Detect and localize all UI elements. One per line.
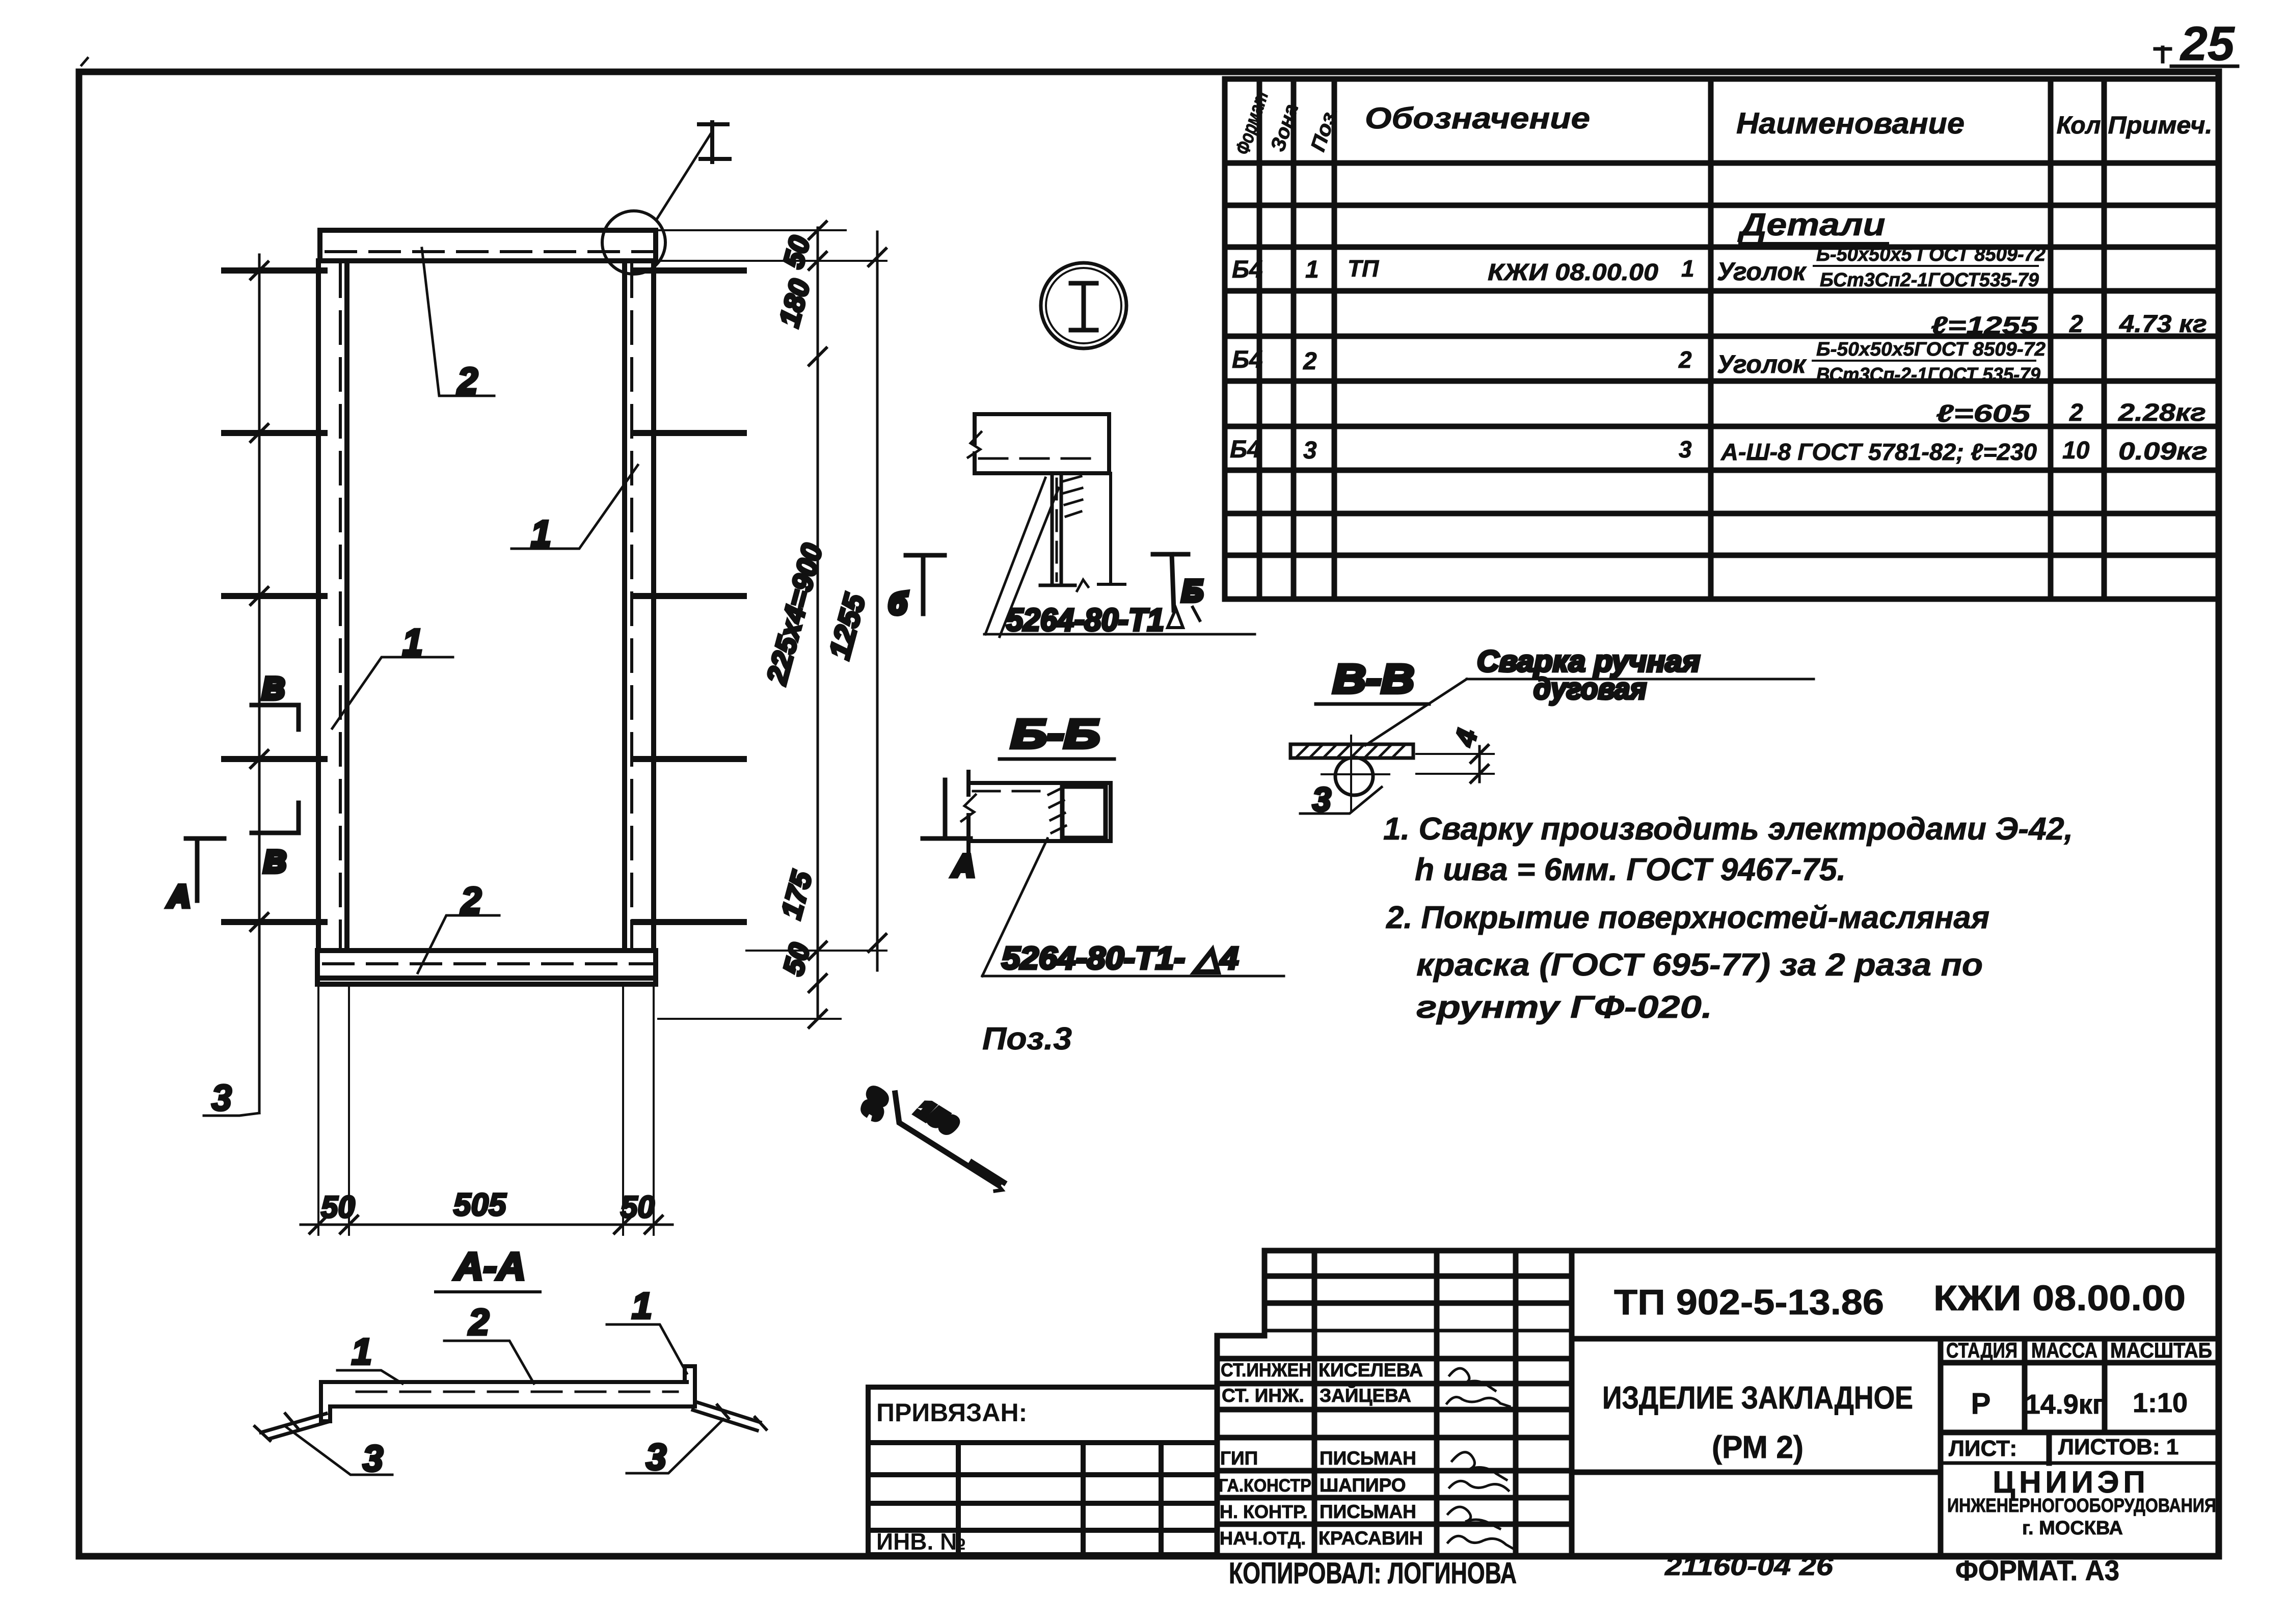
svg-text:ЛИСТ:: ЛИСТ:: [1949, 1436, 2017, 1461]
svg-text:Поз.3: Поз.3: [982, 1021, 1072, 1057]
svg-text:Наименование: Наименование: [1736, 107, 1965, 140]
svg-text:25: 25: [2180, 17, 2235, 71]
svg-text:КЖИ 08.00.00: КЖИ 08.00.00: [1488, 259, 1658, 285]
svg-text:2: 2: [1303, 348, 1317, 375]
svg-text:505: 505: [453, 1187, 507, 1223]
svg-text:0.09кг: 0.09кг: [2118, 438, 2208, 465]
svg-text:2: 2: [468, 1302, 489, 1343]
svg-text:ЛИСТОВ: 1: ЛИСТОВ: 1: [2058, 1434, 2178, 1459]
svg-text:2: 2: [460, 880, 481, 921]
svg-text:1: 1: [632, 1286, 652, 1327]
svg-text:СТАДИЯ: СТАДИЯ: [1946, 1338, 2017, 1362]
svg-text:А-Ш-8 ГОСТ 5781-82; ℓ=230: А-Ш-8 ГОСТ 5781-82; ℓ=230: [1720, 439, 2037, 465]
svg-text:ИНЖЕНЕРНОГООБОРУДОВАНИЯ: ИНЖЕНЕРНОГООБОРУДОВАНИЯ: [1947, 1495, 2216, 1517]
svg-text:БСт3Сп2-1ГОСТ535-79: БСт3Сп2-1ГОСТ535-79: [1820, 269, 2039, 291]
svg-text:Б4: Б4: [1232, 256, 1263, 283]
svg-text:1: 1: [531, 513, 551, 554]
svg-text:Б4: Б4: [1230, 436, 1261, 463]
svg-text:1:10: 1:10: [2133, 1388, 2188, 1418]
svg-text:дуговая: дуговая: [1533, 672, 1647, 706]
svg-text:В-В: В-В: [1333, 656, 1414, 701]
svg-text:5264-80-Т1- △4: 5264-80-Т1- △4: [1002, 941, 1239, 976]
svg-text:МАСШТАБ: МАСШТАБ: [2110, 1338, 2212, 1362]
svg-text:ПРИВЯЗАН:: ПРИВЯЗАН:: [876, 1398, 1027, 1427]
svg-text:50: 50: [321, 1190, 355, 1224]
svg-text:10: 10: [2062, 437, 2090, 464]
svg-text:Б-50х50х5ГОСТ 8509-72: Б-50х50х5ГОСТ 8509-72: [1816, 339, 2046, 360]
svg-text:В: В: [262, 671, 284, 706]
svg-text:КОПИРОВАЛ: ЛОГИНОВА: КОПИРОВАЛ: ЛОГИНОВА: [1229, 1557, 1517, 1590]
svg-text:Н. КОНТР.: Н. КОНТР.: [1220, 1501, 1308, 1522]
svg-text:3: 3: [211, 1078, 232, 1119]
svg-text:Обозначение: Обозначение: [1365, 102, 1590, 135]
svg-text:2: 2: [456, 361, 478, 401]
svg-text:4.73 кг: 4.73 кг: [2119, 311, 2207, 338]
svg-text:(РМ 2): (РМ 2): [1712, 1430, 1804, 1465]
svg-text:h шва = 6мм. ГОСТ 9467-75.: h шва = 6мм. ГОСТ 9467-75.: [1415, 852, 1846, 887]
svg-text:грунту ГФ-020.: грунту ГФ-020.: [1416, 990, 1712, 1025]
svg-text:3: 3: [1312, 780, 1331, 818]
svg-text:ТП: ТП: [1348, 255, 1379, 282]
svg-text:МАССА: МАССА: [2031, 1338, 2097, 1362]
svg-text:3: 3: [1303, 437, 1317, 464]
svg-text:Б-Б: Б-Б: [1011, 711, 1100, 756]
svg-text:1: 1: [402, 622, 423, 663]
svg-text:ВСт3Сп-2-1ГОСТ 535-79: ВСт3Сп-2-1ГОСТ 535-79: [1816, 364, 2040, 386]
svg-text:ФОРМАТ. А3: ФОРМАТ. А3: [1955, 1554, 2119, 1586]
svg-text:Уголок: Уголок: [1717, 257, 1807, 286]
svg-text:СТ.ИНЖЕН: СТ.ИНЖЕН: [1221, 1360, 1311, 1381]
svg-text:3: 3: [1679, 436, 1692, 463]
svg-text:ГА.КОНСТР: ГА.КОНСТР: [1219, 1476, 1311, 1496]
svg-text:ℓ=1255: ℓ=1255: [1931, 312, 2039, 339]
svg-text:2: 2: [1678, 346, 1692, 373]
svg-text:ℓ=605: ℓ=605: [1936, 400, 2031, 427]
svg-text:3: 3: [646, 1437, 666, 1478]
svg-text:ПИСЬМАН: ПИСЬМАН: [1320, 1501, 1416, 1522]
svg-text:А: А: [167, 879, 190, 913]
svg-text:1: 1: [352, 1332, 372, 1372]
svg-text:НАЧ.ОТД.: НАЧ.ОТД.: [1220, 1528, 1306, 1549]
svg-text:ПИСЬМАН: ПИСЬМАН: [1320, 1448, 1416, 1469]
svg-text:КИСЕЛЕВА: КИСЕЛЕВА: [1319, 1360, 1423, 1381]
svg-text:2. Покрытие поверхностей-масля: 2. Покрытие поверхностей-масляная: [1386, 900, 1989, 935]
svg-text:Детали: Детали: [1737, 207, 1886, 242]
svg-text:В: В: [264, 845, 286, 879]
svg-text:14.9кг: 14.9кг: [2025, 1389, 2104, 1420]
svg-text:ШАПИРО: ШАПИРО: [1320, 1475, 1406, 1496]
svg-text:Примеч.: Примеч.: [2108, 112, 2213, 139]
svg-text:А: А: [952, 849, 975, 883]
svg-text:КЖИ 08.00.00: КЖИ 08.00.00: [1933, 1278, 2186, 1318]
svg-text:Уголок: Уголок: [1717, 350, 1807, 378]
svg-text:КРАСАВИН: КРАСАВИН: [1319, 1528, 1423, 1549]
svg-text:1: 1: [1681, 255, 1694, 282]
svg-text:б: б: [889, 587, 908, 620]
svg-text:ЦНИИЭП: ЦНИИЭП: [1993, 1465, 2149, 1499]
svg-text:Б4: Б4: [1232, 346, 1263, 373]
svg-text:1: 1: [1305, 256, 1319, 283]
svg-text:50: 50: [621, 1190, 655, 1224]
svg-text:А-А: А-А: [453, 1245, 526, 1288]
svg-text:3: 3: [363, 1439, 383, 1479]
svg-text:1. Сварку производить электрод: 1. Сварку производить электродами Э-42,: [1383, 811, 2073, 847]
svg-text:ЗАЙЦЕВА: ЗАЙЦЕВА: [1320, 1385, 1411, 1406]
svg-text:СТ. ИНЖ.: СТ. ИНЖ.: [1222, 1385, 1304, 1406]
svg-text:ТП 902-5-13.86: ТП 902-5-13.86: [1614, 1282, 1884, 1322]
svg-text:Б-50х50х5 ГОСТ 8509-72: Б-50х50х5 ГОСТ 8509-72: [1816, 244, 2046, 265]
svg-text:краска (ГОСТ 695-77) за 2 раза: краска (ГОСТ 695-77) за 2 раза по: [1416, 948, 1983, 983]
svg-text:2: 2: [2069, 311, 2083, 338]
svg-text:2: 2: [2069, 399, 2083, 426]
svg-text:Р: Р: [1971, 1387, 1991, 1420]
svg-text:5264-80-Т1: 5264-80-Т1: [1006, 603, 1164, 638]
svg-text:Б: Б: [1182, 575, 1203, 608]
svg-text:г. МОСКВА: г. МОСКВА: [2022, 1518, 2123, 1539]
svg-text:ГИП: ГИП: [1220, 1448, 1258, 1469]
svg-text:21160-04 26: 21160-04 26: [1664, 1552, 1834, 1581]
svg-text:Кол: Кол: [2057, 112, 2101, 139]
svg-text:ИЗДЕЛИЕ ЗАКЛАДНОЕ: ИЗДЕЛИЕ ЗАКЛАДНОЕ: [1602, 1381, 1913, 1416]
svg-text:ИНВ. №: ИНВ. №: [876, 1528, 966, 1555]
svg-text:2.28кг: 2.28кг: [2118, 399, 2206, 426]
